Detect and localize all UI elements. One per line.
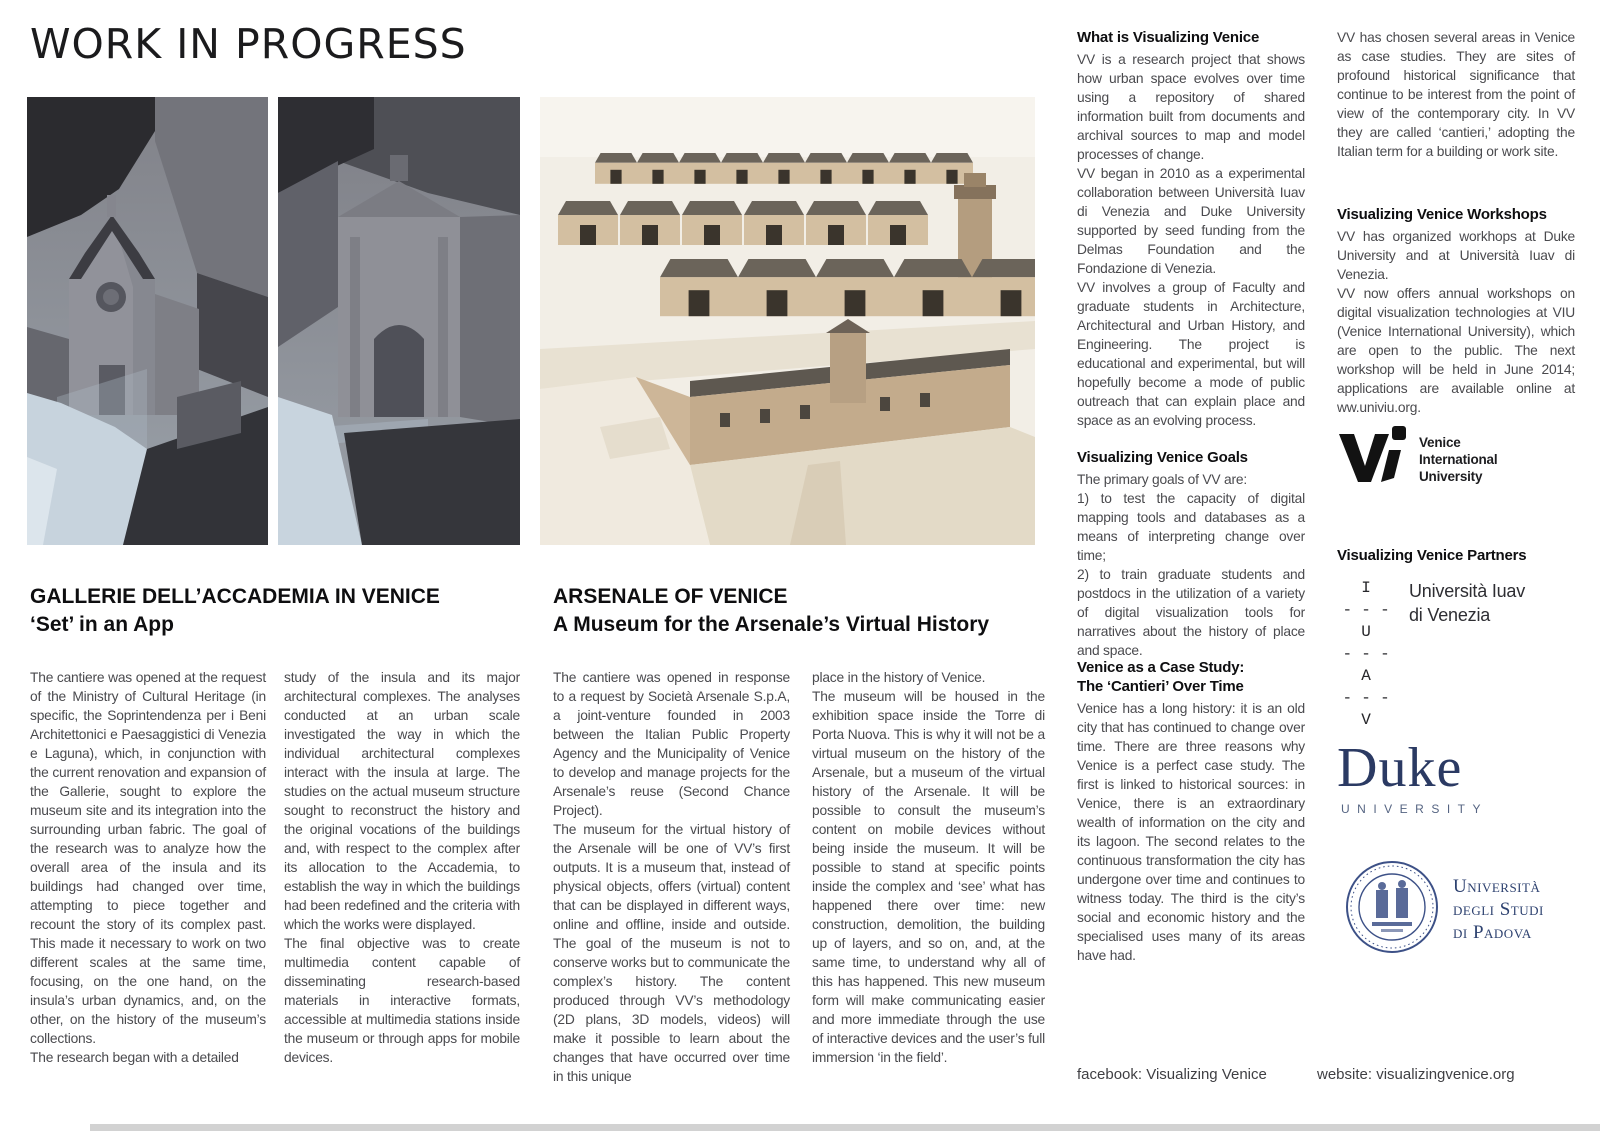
iuav-name-line2: di Venezia: [1409, 603, 1525, 627]
arsenale-column-2: place in the history of Venice. The muse…: [812, 668, 1045, 1067]
section-heading: Visualizing Venice Workshops: [1337, 205, 1575, 224]
accademia-column-1: The cantiere was opened at the request o…: [30, 668, 266, 1067]
paragraph: VV has organized workhops at Duke Univer…: [1337, 227, 1575, 284]
accademia-render-2-image: [278, 97, 520, 545]
viu-logo-icon: [1337, 420, 1409, 489]
right-column: VV has chosen several areas in Venice as…: [1337, 28, 1575, 1018]
accademia-render-1: [27, 97, 268, 545]
iuav-letter-v: V: [1337, 709, 1395, 731]
paragraph: VV began in 2010 as a experimental colla…: [1077, 164, 1305, 278]
viu-logo: Venice International University: [1337, 420, 1575, 489]
iuav-letter-a: A: [1337, 665, 1395, 687]
paragraph: VV has chosen several areas in Venice as…: [1337, 28, 1575, 161]
arsenale-subtitle: A Museum for the Arsenale’s Virtual Hist…: [553, 611, 1043, 639]
sidebar-column: What is Visualizing Venice VV is a resea…: [1077, 28, 1305, 1018]
paragraph: place in the history of Venice.: [812, 668, 1045, 687]
iuav-dashes: - - -: [1337, 687, 1395, 709]
padova-name: Università degli Studi di Padova: [1453, 875, 1544, 944]
duke-logo: Duke UNIVERSITY: [1337, 740, 1575, 819]
iuav-name-line1: Università Iuav: [1409, 579, 1525, 603]
section-heading-line2: The ‘Cantieri’ Over Time: [1077, 677, 1305, 696]
iuav-letter-u: U: [1337, 621, 1395, 643]
paragraph: The cantiere was opened at the request o…: [30, 668, 266, 1048]
paragraph: VV involves a group of Faculty and gradu…: [1077, 278, 1305, 430]
iuav-letter-i: I: [1337, 577, 1395, 599]
section-vv-goals: Visualizing Venice Goals The primary goa…: [1077, 448, 1305, 660]
accademia-column-2: study of the insula and its major archit…: [284, 668, 520, 1067]
padova-line-1: Università: [1453, 875, 1544, 898]
viu-logo-text: Venice International University: [1419, 434, 1497, 485]
footer-facebook: facebook: Visualizing Venice: [1077, 1066, 1267, 1083]
section-heading-line1: Venice as a Case Study:: [1077, 658, 1305, 677]
partners-heading: Visualizing Venice Partners: [1337, 546, 1575, 565]
iuav-dashes: - - -: [1337, 599, 1395, 621]
iuav-logo: I - - - U - - - A - - - V Università Iua…: [1337, 577, 1575, 731]
arsenale-render: [540, 97, 1035, 545]
footer-website: website: visualizingvenice.org: [1317, 1066, 1515, 1083]
section-what-is-vv: What is Visualizing Venice VV is a resea…: [1077, 28, 1305, 430]
accademia-render-2: [278, 97, 520, 545]
paragraph: The museum will be housed in the exhibit…: [812, 687, 1045, 1067]
paragraph: The primary goals of VV are:: [1077, 470, 1305, 489]
poster-page: WORK IN PROGRESS: [0, 0, 1600, 1131]
section-heading: Visualizing Venice Goals: [1077, 448, 1305, 467]
accademia-render-1-image: [27, 97, 268, 545]
accademia-subtitle: ‘Set’ in an App: [30, 611, 520, 639]
iuav-name: Università Iuav di Venezia: [1409, 579, 1525, 627]
iuav-dashes: - - -: [1337, 643, 1395, 665]
accademia-heading-block: GALLERIE DELL’ACCADEMIA IN VENICE ‘Set’ …: [30, 583, 520, 639]
section-case-study: Venice as a Case Study: The ‘Cantieri’ O…: [1077, 658, 1305, 965]
bottom-divider-bar: [90, 1124, 1600, 1131]
arsenale-render-image: [540, 97, 1035, 545]
paragraph: VV now offers annual workshops on digita…: [1337, 284, 1575, 417]
paragraph: The final objective was to create multim…: [284, 934, 520, 1067]
page-title: WORK IN PROGRESS: [30, 20, 467, 68]
viu-line-2: International: [1419, 451, 1497, 468]
padova-line-3: di Padova: [1453, 921, 1544, 944]
viu-line-1: Venice: [1419, 434, 1497, 451]
iuav-logo-icon: I - - - U - - - A - - - V: [1337, 577, 1395, 731]
padova-logo: Università degli Studi di Padova: [1345, 860, 1583, 959]
paragraph: Venice has a long history: it is an old …: [1077, 699, 1305, 965]
paragraph: The research began with a detailed: [30, 1048, 266, 1067]
section-workshops: Visualizing Venice Workshops VV has orga…: [1337, 205, 1575, 417]
section-cantieri-intro: VV has chosen several areas in Venice as…: [1337, 28, 1575, 161]
accademia-title: GALLERIE DELL’ACCADEMIA IN VENICE: [30, 583, 520, 611]
paragraph: 2) to train graduate students and postdo…: [1077, 565, 1305, 660]
paragraph: study of the insula and its major archit…: [284, 668, 520, 934]
arsenale-title: ARSENALE OF VENICE: [553, 583, 1043, 611]
arsenale-column-1: The cantiere was opened in response to a…: [553, 668, 790, 1086]
padova-seal-icon: [1345, 860, 1439, 959]
paragraph: The cantiere was opened in response to a…: [553, 668, 790, 820]
viu-line-3: University: [1419, 468, 1497, 485]
paragraph: 1) to test the capacity of digital mappi…: [1077, 489, 1305, 565]
duke-university-label: UNIVERSITY: [1341, 800, 1575, 819]
paragraph: The museum for the virtual history of th…: [553, 820, 790, 1086]
padova-line-2: degli Studi: [1453, 898, 1544, 921]
arsenale-heading-block: ARSENALE OF VENICE A Museum for the Arse…: [553, 583, 1043, 639]
section-heading: What is Visualizing Venice: [1077, 28, 1305, 47]
duke-wordmark: Duke: [1337, 740, 1575, 796]
paragraph: VV is a research project that shows how …: [1077, 50, 1305, 164]
